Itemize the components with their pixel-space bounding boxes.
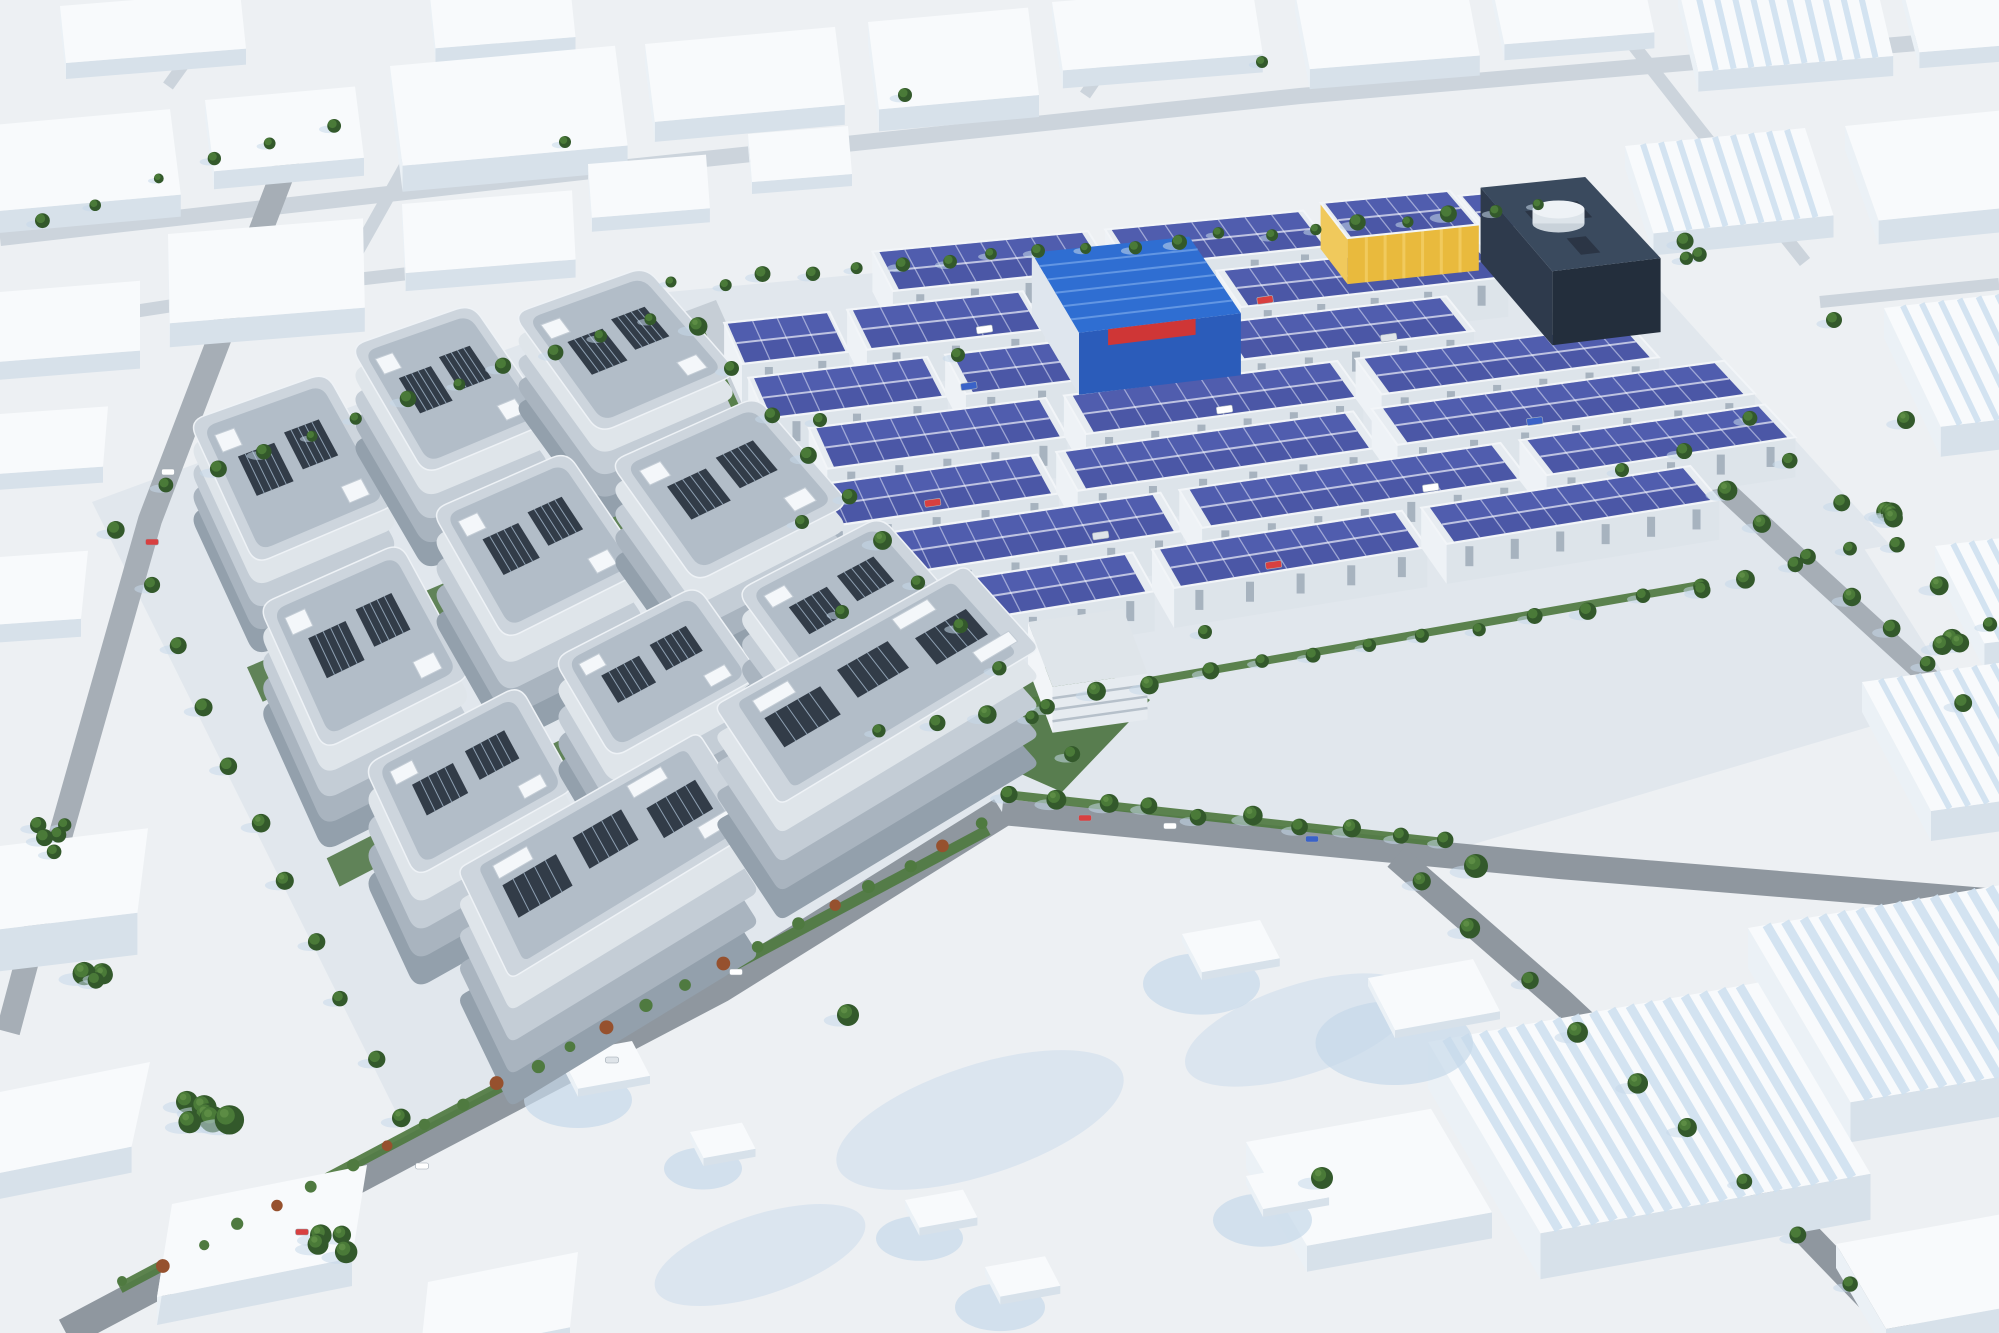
dock-door: [1126, 601, 1134, 621]
shrub: [599, 1020, 613, 1034]
background-building: [0, 551, 88, 643]
background-building: [402, 190, 576, 291]
background-building-roof: [748, 126, 852, 182]
shrub: [199, 1240, 209, 1250]
scene-svg: [0, 0, 1999, 1333]
shrub: [231, 1218, 243, 1230]
shrub: [976, 817, 988, 829]
shrub: [936, 840, 949, 853]
shrub: [117, 1276, 127, 1286]
dock-door: [1602, 524, 1610, 544]
shrub: [565, 1041, 576, 1052]
shrub: [347, 1159, 360, 1172]
shrub: [382, 1140, 393, 1151]
shrub: [716, 957, 730, 971]
shrub: [862, 880, 875, 893]
car: [146, 539, 159, 545]
shrub: [752, 941, 764, 953]
background-building: [0, 828, 148, 972]
background-building: [868, 8, 1039, 132]
shrub: [156, 1259, 170, 1273]
background-building: [205, 87, 364, 190]
background-building-roof: [390, 46, 628, 166]
background-building-roof: [0, 406, 108, 474]
car: [730, 969, 743, 975]
shrub: [639, 999, 652, 1012]
shrub: [457, 1099, 469, 1111]
car: [1164, 823, 1177, 829]
dock-door: [1478, 286, 1486, 306]
car: [1079, 815, 1092, 821]
background-building-roof: [0, 551, 88, 625]
shrub: [829, 900, 840, 911]
car: [296, 1229, 309, 1235]
background-building-roof: [588, 155, 710, 218]
dock-door: [1246, 582, 1254, 602]
background-building: [748, 126, 852, 194]
dock-door: [1398, 557, 1406, 577]
background-building-roof: [168, 218, 365, 323]
background-building-roof: [868, 8, 1039, 110]
background-warehouse-shed: [1678, 0, 1893, 92]
yellow-building: [1321, 191, 1479, 284]
dock-door: [1347, 565, 1355, 585]
background-building: [168, 218, 365, 347]
dock-door: [1693, 509, 1701, 529]
background-building-roof: [0, 281, 140, 362]
shrub: [905, 860, 917, 872]
shrub: [419, 1119, 430, 1130]
background-building: [1295, 0, 1480, 89]
shrub: [271, 1200, 282, 1211]
dock-door: [1465, 546, 1473, 566]
shrub: [490, 1076, 504, 1090]
dock-door: [1511, 539, 1519, 559]
shrub: [792, 917, 805, 930]
shrub: [679, 979, 691, 991]
background-warehouse-shed: [1625, 128, 1834, 255]
background-building: [0, 281, 140, 380]
car: [1306, 836, 1319, 842]
background-building-roof: [402, 190, 576, 273]
aerial-render: [0, 0, 1999, 1333]
utility-building-front-face: [1552, 258, 1660, 345]
background-building: [0, 406, 108, 490]
background-building: [0, 109, 181, 235]
background-building: [588, 155, 710, 232]
dock-door: [1195, 590, 1203, 610]
shrub: [305, 1181, 317, 1193]
dock-door: [1647, 517, 1655, 537]
dock-door: [1717, 455, 1725, 475]
background-building: [645, 27, 845, 142]
car: [606, 1057, 619, 1063]
shrub: [532, 1060, 545, 1073]
car: [416, 1163, 429, 1169]
dock-door: [1556, 531, 1564, 551]
dock-door: [1297, 574, 1305, 594]
car: [162, 469, 175, 475]
